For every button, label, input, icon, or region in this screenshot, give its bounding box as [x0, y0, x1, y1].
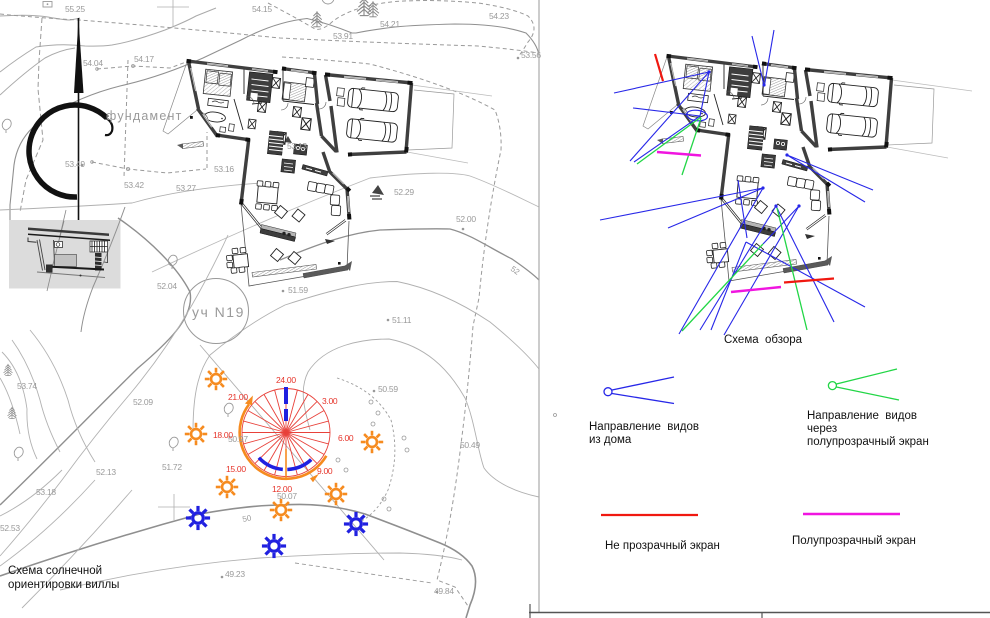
- svg-text:54.17: 54.17: [134, 54, 154, 64]
- svg-text:54.23: 54.23: [489, 11, 509, 21]
- svg-text:53.16: 53.16: [214, 164, 234, 174]
- svg-text:21.00: 21.00: [228, 392, 248, 402]
- svg-text:53.49: 53.49: [65, 159, 85, 169]
- svg-text:53.27: 53.27: [176, 183, 196, 193]
- svg-text:Схема солнечной: Схема солнечной: [8, 565, 102, 577]
- svg-text:через: через: [807, 423, 837, 435]
- svg-text:54.15: 54.15: [252, 4, 272, 14]
- svg-text:Схема обзора: Схема обзора: [724, 334, 803, 346]
- svg-text:52.13: 52.13: [96, 467, 116, 477]
- svg-text:24.00: 24.00: [276, 375, 296, 385]
- svg-text:54.04: 54.04: [83, 58, 103, 68]
- svg-text:52.00: 52.00: [456, 214, 476, 224]
- svg-text:49.84: 49.84: [434, 586, 454, 596]
- svg-text:Не прозрачный экран: Не прозрачный экран: [605, 540, 720, 552]
- svg-text:51.11: 51.11: [392, 315, 412, 325]
- svg-text:50.59: 50.59: [378, 384, 398, 394]
- svg-text:53.56: 53.56: [521, 50, 541, 60]
- svg-text:Полупрозрачный экран: Полупрозрачный экран: [792, 535, 916, 547]
- svg-text:52.29: 52.29: [394, 187, 414, 197]
- svg-text:52.53: 52.53: [0, 523, 20, 533]
- svg-text:53.13: 53.13: [287, 141, 307, 151]
- svg-text:53.74: 53.74: [17, 381, 37, 391]
- svg-text:53.42: 53.42: [124, 180, 144, 190]
- svg-text:51.59: 51.59: [288, 285, 308, 295]
- svg-text:52.04: 52.04: [157, 281, 177, 291]
- svg-text:Направление видов: Направление видов: [807, 410, 917, 422]
- svg-text:51.72: 51.72: [162, 462, 182, 472]
- svg-text:из дома: из дома: [589, 434, 632, 446]
- svg-text:9.00: 9.00: [317, 466, 333, 476]
- svg-text:ориентировки виллы: ориентировки виллы: [8, 579, 119, 591]
- svg-text:52.09: 52.09: [133, 397, 153, 407]
- svg-text:49.23: 49.23: [225, 569, 245, 579]
- svg-text:полупрозрачный экран: полупрозрачный экран: [807, 436, 929, 448]
- svg-text:54.21: 54.21: [380, 19, 400, 29]
- svg-text:12.00: 12.00: [272, 484, 292, 494]
- svg-text:50.49: 50.49: [460, 440, 480, 450]
- svg-text:уч N19: уч N19: [192, 304, 245, 320]
- svg-text:Направление видов: Направление видов: [589, 421, 699, 433]
- svg-text:53.18: 53.18: [36, 487, 56, 497]
- svg-text:52: 52: [509, 264, 522, 277]
- svg-text:18.00: 18.00: [213, 430, 233, 440]
- svg-text:3.00: 3.00: [322, 396, 338, 406]
- svg-text:фундамент: фундамент: [106, 109, 183, 123]
- svg-text:53.91: 53.91: [333, 31, 353, 41]
- svg-text:6.00: 6.00: [338, 433, 354, 443]
- svg-text:50: 50: [242, 513, 253, 524]
- svg-text:15.00: 15.00: [226, 464, 246, 474]
- svg-text:55.25: 55.25: [65, 4, 85, 14]
